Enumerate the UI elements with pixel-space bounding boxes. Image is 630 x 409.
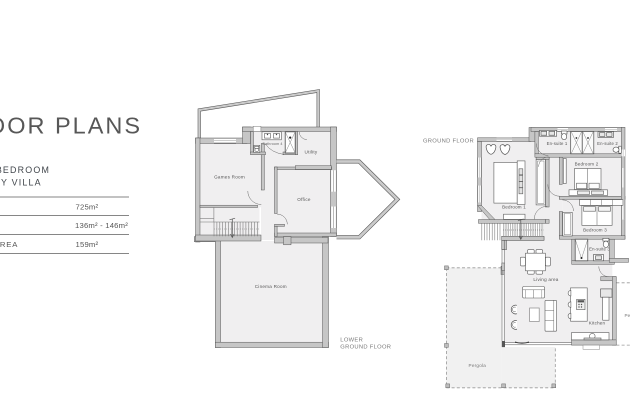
svg-text:FLOOR PLANS: FLOOR PLANS bbox=[0, 113, 142, 139]
svg-text:Living area: Living area bbox=[533, 277, 558, 282]
svg-text:En-suite 3: En-suite 3 bbox=[589, 247, 610, 252]
svg-text:En-suite 1: En-suite 1 bbox=[547, 141, 568, 146]
svg-text:Bedroom 1: Bedroom 1 bbox=[502, 205, 526, 210]
svg-text:En-suite 2: En-suite 2 bbox=[597, 141, 618, 146]
svg-text:Cinema Room: Cinema Room bbox=[255, 284, 287, 289]
svg-text:159m²: 159m² bbox=[76, 240, 99, 249]
svg-text:Utility: Utility bbox=[305, 150, 318, 155]
svg-text:Pe: Pe bbox=[625, 313, 630, 318]
svg-text:Bedroom 3: Bedroom 3 bbox=[583, 228, 607, 233]
svg-text:Kitchen: Kitchen bbox=[589, 321, 606, 326]
svg-text:Games Room: Games Room bbox=[214, 175, 245, 180]
svg-text:AREA: AREA bbox=[0, 240, 18, 249]
svg-text:Office: Office bbox=[297, 197, 311, 202]
svg-text:Pergola: Pergola bbox=[469, 363, 487, 368]
svg-text:LOWER: LOWER bbox=[340, 338, 363, 344]
svg-text:Bathroom 4: Bathroom 4 bbox=[262, 142, 282, 146]
svg-text:BEDROOM: BEDROOM bbox=[0, 165, 50, 175]
svg-text:GROUND FLOOR: GROUND FLOOR bbox=[423, 138, 474, 144]
svg-text:Y VILLA: Y VILLA bbox=[1, 178, 42, 188]
svg-text:136m² - 146m²: 136m² - 146m² bbox=[75, 221, 128, 230]
svg-text:725m²: 725m² bbox=[76, 202, 99, 211]
svg-text:Bedroom 2: Bedroom 2 bbox=[575, 162, 599, 167]
svg-text:GROUND FLOOR: GROUND FLOOR bbox=[340, 344, 391, 350]
